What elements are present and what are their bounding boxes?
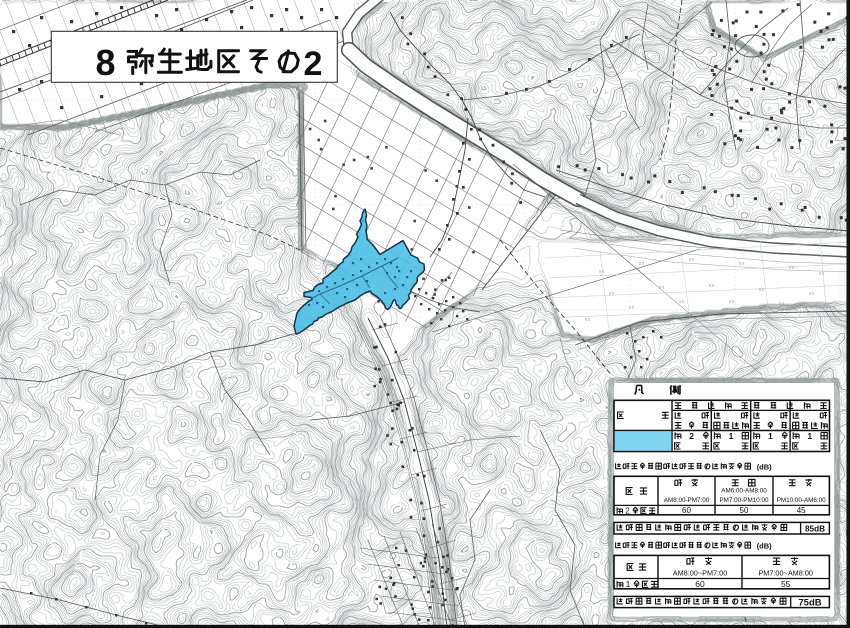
svg-text:8: 8 — [95, 42, 115, 83]
svg-text:50: 50 — [740, 506, 749, 515]
svg-text:75dB: 75dB — [798, 598, 821, 609]
svg-text:AM8:00~PM7:00: AM8:00~PM7:00 — [673, 569, 728, 578]
svg-text:55: 55 — [781, 579, 791, 589]
svg-text:1: 1 — [626, 579, 631, 589]
svg-text:2: 2 — [625, 506, 630, 515]
svg-text:1: 1 — [729, 431, 734, 441]
svg-text:AM8:00-PM7:00: AM8:00-PM7:00 — [664, 497, 710, 504]
svg-text:60: 60 — [695, 579, 705, 589]
svg-text:PM7:00~AM8:00: PM7:00~AM8:00 — [758, 569, 813, 578]
svg-text:85dB: 85dB — [805, 525, 825, 534]
svg-text:1: 1 — [807, 431, 812, 441]
svg-text:(dB): (dB) — [757, 462, 772, 471]
svg-text:PM10:00-AM6:00: PM10:00-AM6:00 — [777, 497, 826, 504]
svg-text:2: 2 — [304, 45, 323, 83]
svg-text:AM6:00-AM8:00: AM6:00-AM8:00 — [721, 488, 767, 495]
svg-text:PM7:00-PM10:00: PM7:00-PM10:00 — [719, 497, 768, 504]
svg-text:2: 2 — [689, 431, 694, 441]
svg-text:1: 1 — [768, 431, 773, 441]
svg-text:45: 45 — [797, 506, 806, 515]
svg-text:60: 60 — [682, 506, 691, 515]
svg-text:(dB): (dB) — [757, 541, 772, 550]
